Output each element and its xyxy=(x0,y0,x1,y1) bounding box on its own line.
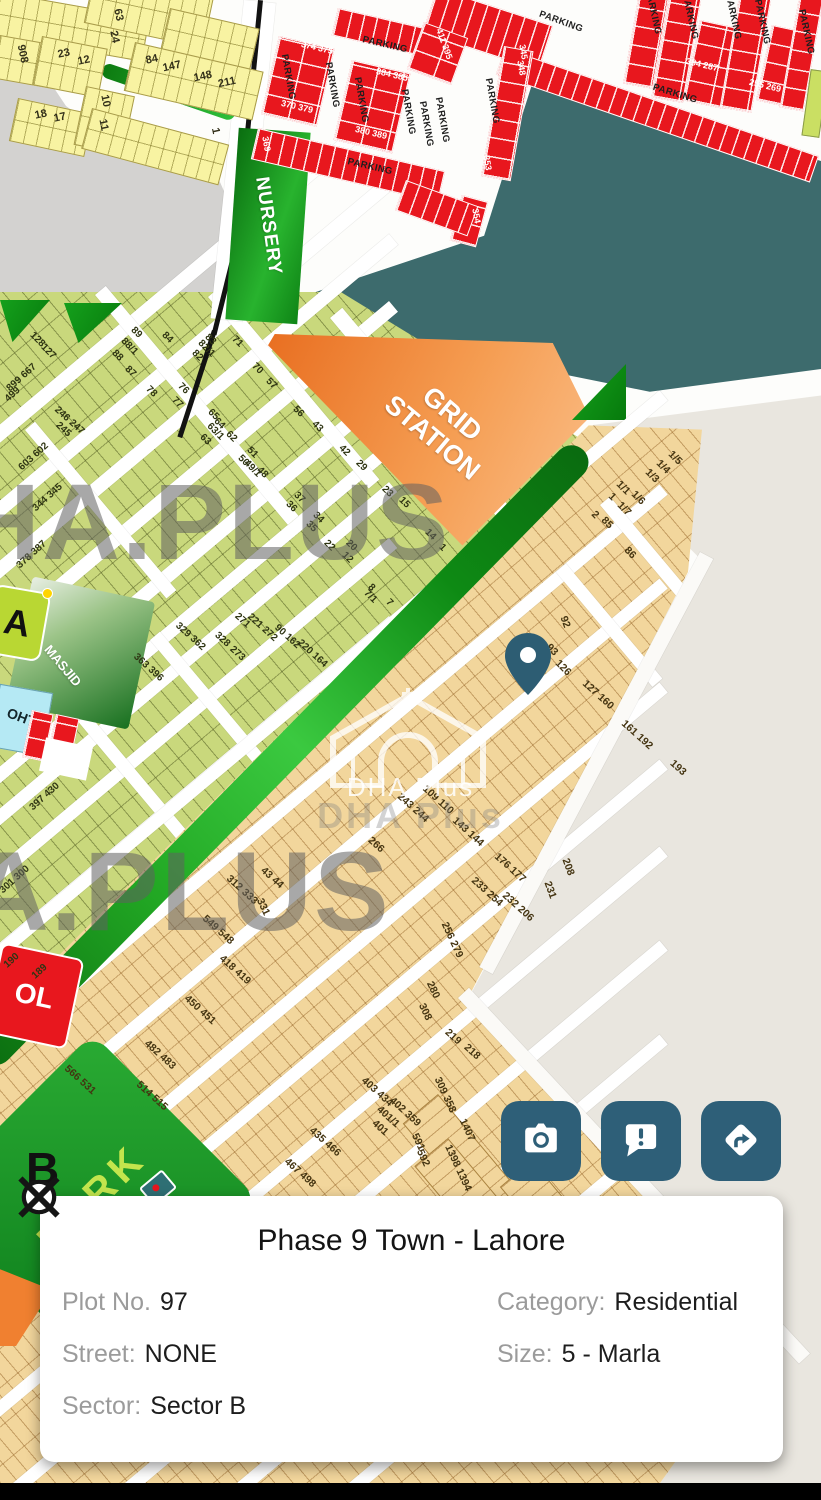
parking-road-label: PARKING xyxy=(433,97,450,144)
plot-number-label: 908 xyxy=(15,44,30,64)
school-label: OL xyxy=(12,976,57,1015)
report-exclamation-icon xyxy=(619,1118,663,1165)
plot-number-label: 1 xyxy=(209,127,221,135)
map-screen[interactable]: NURSERY GRID STATION xyxy=(0,0,821,1500)
plot-number-label: 369 xyxy=(260,136,271,152)
red-dot xyxy=(151,1183,161,1193)
camera-button[interactable] xyxy=(501,1101,581,1181)
street-row: Street:NONE xyxy=(62,1340,217,1369)
nursery-label: NURSERY xyxy=(250,175,286,276)
plot-number-label: 63 xyxy=(111,8,124,22)
plot-number-label: 10 xyxy=(98,94,111,108)
directions-icon xyxy=(718,1117,764,1166)
masjid-label: MASJID xyxy=(41,641,84,688)
street-value: NONE xyxy=(145,1340,217,1368)
parking-road-label: PARKING xyxy=(417,101,434,148)
plot-number-label: 348 xyxy=(515,60,526,76)
compass-icon[interactable] xyxy=(12,1170,66,1224)
size-value: 5 - Marla xyxy=(562,1340,661,1368)
card-title: Phase 9 Town - Lahore xyxy=(40,1224,783,1258)
sector-a-label: A xyxy=(1,600,34,646)
plot-number-label: 345 xyxy=(517,44,528,60)
watermark-text-top: HA.PLUS xyxy=(0,468,450,576)
sector-value: Sector B xyxy=(150,1392,246,1420)
yellow-dot-marker xyxy=(42,588,53,599)
plot-no-value: 97 xyxy=(160,1288,188,1316)
category-value: Residential xyxy=(614,1288,738,1316)
sector-label: Sector: xyxy=(62,1392,141,1420)
plot-number-label: 353 xyxy=(481,155,492,171)
category-row: Category:Residential xyxy=(497,1288,738,1317)
size-label: Size: xyxy=(497,1340,553,1368)
plot-no-label: Plot No. xyxy=(62,1288,151,1316)
camera-icon xyxy=(519,1118,563,1165)
plot-number-label: 11 xyxy=(96,118,109,132)
system-navigation-bar xyxy=(0,1483,821,1500)
logo-text: DHA Plus xyxy=(0,772,821,803)
category-label: Category: xyxy=(497,1288,605,1316)
location-pin[interactable] xyxy=(505,633,551,695)
street-label: Street: xyxy=(62,1340,136,1368)
plot-number-label: 24 xyxy=(107,30,120,44)
parking-road-label: PARKING xyxy=(399,89,416,136)
size-row: Size:5 - Marla xyxy=(497,1340,660,1369)
directions-button[interactable] xyxy=(701,1101,781,1181)
plot-number-label: 354 xyxy=(470,208,481,224)
watermark-text-bottom: A.PLUS xyxy=(0,836,391,948)
parking-road-label: PARKING xyxy=(323,62,340,109)
plot-info-card: Phase 9 Town - Lahore Plot No.97 Categor… xyxy=(40,1196,783,1462)
sector-row: Sector:Sector B xyxy=(62,1392,246,1421)
report-button[interactable] xyxy=(601,1101,681,1181)
plot-no-row: Plot No.97 xyxy=(62,1288,188,1317)
